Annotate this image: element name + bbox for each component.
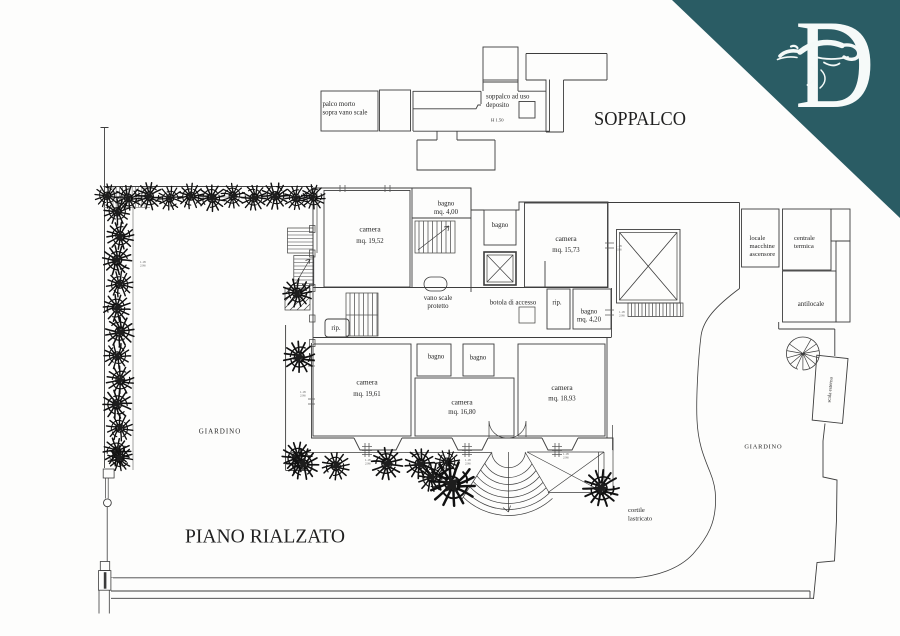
svg-text:2.96: 2.96 <box>300 394 306 398</box>
svg-text:cortile: cortile <box>628 507 645 514</box>
svg-text:bagno: bagno <box>581 309 598 316</box>
svg-text:GIARDINO: GIARDINO <box>744 444 782 451</box>
svg-text:2.96: 2.96 <box>140 264 146 268</box>
svg-text:bagno: bagno <box>428 354 445 361</box>
svg-text:botola di accesso: botola di accesso <box>490 300 537 307</box>
svg-text:centrale: centrale <box>794 235 815 242</box>
svg-text:antilocale: antilocale <box>798 301 824 308</box>
svg-text:2.96: 2.96 <box>619 314 625 318</box>
svg-text:mq. 15,73: mq. 15,73 <box>552 247 580 254</box>
svg-text:termica: termica <box>794 243 814 250</box>
svg-text:2.96: 2.96 <box>616 248 622 252</box>
svg-text:bagno: bagno <box>470 355 487 362</box>
svg-text:mq. 18,93: mq. 18,93 <box>548 396 576 403</box>
svg-text:sopra vano scale: sopra vano scale <box>323 110 368 117</box>
svg-text:macchine: macchine <box>750 243 775 250</box>
svg-text:2.96: 2.96 <box>465 462 471 466</box>
svg-text:mq. 16,80: mq. 16,80 <box>448 409 476 416</box>
svg-text:locale: locale <box>750 235 766 242</box>
svg-text:H 1.50: H 1.50 <box>491 118 504 123</box>
svg-text:mq. 4,20: mq. 4,20 <box>577 317 602 324</box>
svg-text:GIARDINO: GIARDINO <box>199 428 242 436</box>
svg-text:ascensore: ascensore <box>750 251 776 258</box>
svg-text:camera: camera <box>551 383 573 392</box>
svg-text:vano scale: vano scale <box>424 295 453 302</box>
svg-text:palco morto: palco morto <box>323 101 356 108</box>
svg-text:lastricato: lastricato <box>628 516 653 523</box>
svg-text:mq. 19,61: mq. 19,61 <box>353 391 380 398</box>
svg-text:deposito: deposito <box>486 102 510 109</box>
svg-text:SOPPALCO: SOPPALCO <box>594 109 686 130</box>
svg-text:camera: camera <box>359 225 381 234</box>
svg-text:2.96: 2.96 <box>563 456 569 460</box>
svg-text:rip.: rip. <box>331 325 341 332</box>
svg-text:bagno: bagno <box>438 201 455 208</box>
svg-text:soppalco ad uso: soppalco ad uso <box>486 94 530 101</box>
svg-text:protetto: protetto <box>427 303 449 310</box>
svg-text:mq. 4,00: mq. 4,00 <box>434 209 459 216</box>
svg-text:D: D <box>795 0 875 135</box>
svg-text:2.96: 2.96 <box>365 462 371 466</box>
svg-text:camera: camera <box>555 234 577 243</box>
svg-text:camera: camera <box>451 398 473 407</box>
svg-text:mq. 19,52: mq. 19,52 <box>356 238 384 245</box>
svg-text:rip.: rip. <box>552 300 562 307</box>
svg-text:camera: camera <box>356 378 378 387</box>
svg-text:bagno: bagno <box>492 222 509 229</box>
svg-text:PIANO RIALZATO: PIANO RIALZATO <box>185 526 345 548</box>
